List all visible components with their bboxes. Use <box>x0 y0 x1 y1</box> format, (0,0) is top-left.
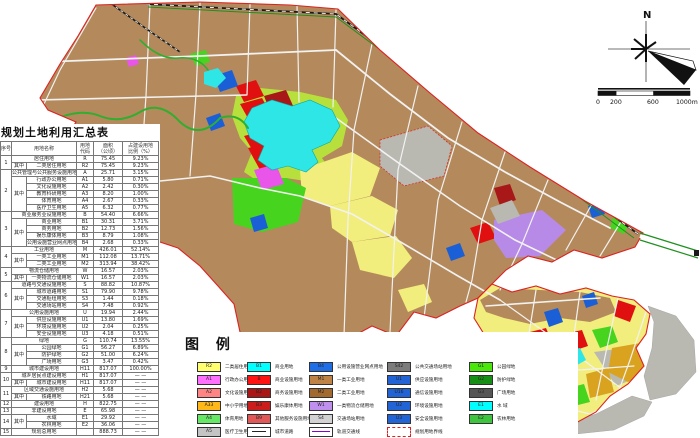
legend-swatch-e2: E2 <box>469 414 493 424</box>
table-cell: 5.68 <box>94 387 123 394</box>
table-cell: G3 <box>77 359 94 366</box>
table-cell: 6.24% <box>123 352 159 359</box>
table-cell: 农林用地 <box>27 422 77 429</box>
legend-swatch-s4: S4 <box>309 414 333 424</box>
table-row: 13非建设用地E65.98— — <box>1 408 159 415</box>
legend-item: U2环境设施用地 <box>387 399 452 412</box>
table-cell: 75.45 <box>94 156 123 163</box>
table-cell: 其中 <box>12 394 27 401</box>
table-cell: 0.30% <box>123 184 159 191</box>
legend-swatch-u3: U3 <box>387 414 411 424</box>
table-cell: G1 <box>77 345 94 352</box>
table-cell: 4 <box>1 247 12 268</box>
legend-swatch-a33: A33 <box>197 401 221 411</box>
table-cell: 铁路用地 <box>27 394 77 401</box>
table-header: 序号用地名称用地 代码面积 （公顷）占建设用地 比例（%） <box>1 142 159 156</box>
legend-swatch-a5: A5 <box>197 427 221 437</box>
table-cell: 13.55% <box>123 338 159 345</box>
table-cell: 10 <box>1 373 12 387</box>
table-cell: U1 <box>77 317 94 324</box>
legend-item: W1一类物流仓储用地 <box>309 399 383 412</box>
table-cell: 绿地 <box>12 338 77 345</box>
table-cell: 6 <box>1 282 12 310</box>
table-cell: U2 <box>77 324 94 331</box>
table-cell: 商务用地 <box>27 226 77 233</box>
table-cell: — — <box>123 394 159 401</box>
table-cell: 水域 <box>27 415 77 422</box>
legend-swatch-m1: M1 <box>309 375 333 385</box>
table-cell: 公园绿地 <box>27 345 77 352</box>
table-cell: 一类工业用地 <box>27 254 77 261</box>
legend-swatch-a2: A2 <box>197 388 221 398</box>
table-cell: 38.42% <box>123 261 159 268</box>
table-cell: 3.15% <box>123 170 159 177</box>
table-cell: 安全设施用地 <box>27 331 77 338</box>
table-cell: A2 <box>77 184 94 191</box>
legend-label: 公共交通场站用地 <box>415 364 452 370</box>
table-cell: 1.56% <box>123 226 159 233</box>
legend-item: A1行政办公用地 <box>197 373 253 386</box>
legend-column: G1公园绿地G2防护绿地G3广场用地E1水 域E2农林用地 <box>469 360 515 425</box>
table-cell: H21 <box>77 394 94 401</box>
legend-item: A5医疗卫生用地 <box>197 425 253 438</box>
legend-item: A2文化设施用地 <box>197 386 253 399</box>
table-cell: E1 <box>77 415 94 422</box>
table-cell: 30.31 <box>94 219 123 226</box>
legend-swatch-g3: G3 <box>469 388 493 398</box>
table-cell: 1.08% <box>123 233 159 240</box>
table-cell: 其中 <box>12 317 27 338</box>
table-cell: — — <box>123 422 159 429</box>
table-cell: 56.27 <box>94 345 123 352</box>
table-cell: 商业用地 <box>27 219 77 226</box>
table-row: 其中铁路用地H215.68— — <box>1 394 159 401</box>
table-cell: 商业服务业设施用地 <box>12 212 77 219</box>
table-cell: 3.47 <box>94 359 123 366</box>
table-cell: 9.78% <box>123 289 159 296</box>
table-cell: 城市建设用地 <box>27 380 77 387</box>
table-row: 15规划总用地888.73— — <box>1 429 159 436</box>
table-cell: 15 <box>1 429 12 436</box>
land-use-summary-table: 序号用地名称用地 代码面积 （公顷）占建设用地 比例（%） 1居住用地R75.4… <box>0 141 159 436</box>
table-cell: 居住用地 <box>12 156 77 163</box>
legend-label: 一类工业用地 <box>337 377 365 383</box>
table-cell: 区域交通设施用地 <box>12 387 77 394</box>
table-cell: 888.73 <box>94 429 123 436</box>
table-cell: M <box>77 247 94 254</box>
scale-label-1000: 1000m <box>676 99 698 106</box>
table-cell: 36.06 <box>94 422 123 429</box>
table-cell: 8 <box>1 338 12 366</box>
table-cell: M2 <box>77 261 94 268</box>
table-cell: W1 <box>77 275 94 282</box>
table-cell: 8.20 <box>94 191 123 198</box>
table-cell: 12.73 <box>94 226 123 233</box>
north-label: N <box>643 10 651 21</box>
legend-label: 体育用地 <box>225 416 243 422</box>
table-row: 7公用设施用地U19.942.44% <box>1 310 159 317</box>
table-cell: 2.03% <box>123 268 159 275</box>
table-cell: 25.71 <box>94 170 123 177</box>
table-cell: E2 <box>77 422 94 429</box>
legend-symbol-rail <box>309 427 333 437</box>
table-cell: 防护绿地 <box>27 352 77 359</box>
table-cell: 其中 <box>12 380 27 387</box>
table-cell: H11 <box>77 366 94 373</box>
legend-label: 二类工业用地 <box>337 390 365 396</box>
table-cell: 112.08 <box>94 254 123 261</box>
table-cell: 公用设施营业网点用地 <box>27 240 77 247</box>
legend-item: 轨道交通线 <box>309 425 383 438</box>
table-cell: 二类居住用地 <box>27 163 77 170</box>
table-row: 其中公园绿地G156.276.89% <box>1 345 159 352</box>
table-row: 3商业服务业设施用地B54.406.66% <box>1 212 159 219</box>
table-cell: 6.32 <box>94 205 123 212</box>
table-cell: 822.75 <box>94 401 123 408</box>
legend-column: S42公共交通场站用地U1供应设施用地U16通信设施用地U2环境设施用地U3安全… <box>387 360 452 438</box>
table-row: 其中供应设施用地U113.801.69% <box>1 317 159 324</box>
table-cell: H <box>77 401 94 408</box>
table-cell: 4.18 <box>94 331 123 338</box>
table-cell: R2 <box>77 163 94 170</box>
table-cell: 0.42% <box>123 359 159 366</box>
table-cell: 城乡居民点建设用地 <box>12 373 77 380</box>
page-title: 规划土地利用汇总表 <box>1 124 160 140</box>
table-cell: A5 <box>77 205 94 212</box>
legend-item: M2二类工业用地 <box>309 386 383 399</box>
table-cell: 7.48 <box>94 303 123 310</box>
table-cell: 0.77% <box>123 205 159 212</box>
legend-swatch-u1: U1 <box>387 375 411 385</box>
legend-label: 公园绿地 <box>497 364 515 370</box>
map-east-highway <box>640 233 699 258</box>
legend-label: 防护绿地 <box>497 377 515 383</box>
legend-label: 交通场站用地 <box>337 416 365 422</box>
table-cell: 75.45 <box>94 163 123 170</box>
legend-item: B1商业用地 <box>247 360 312 373</box>
legend-item: 城市道路 <box>247 425 312 438</box>
table-cell: 行政办公用地 <box>27 177 77 184</box>
table-header-cell: 面积 （公顷） <box>94 142 123 156</box>
table-row: 10城乡居民点建设用地H1817.07— — <box>1 373 159 380</box>
legend-swatch-e1: E1 <box>469 401 493 411</box>
table-cell: B1 <box>77 219 94 226</box>
table-cell: B4 <box>77 240 94 247</box>
legend-item: B4公用设施营业网点用地 <box>309 360 383 373</box>
scale-label-0: 0 <box>596 99 600 106</box>
legend-label: 商务设施用地 <box>275 390 303 396</box>
legend-label: 公用设施营业网点用地 <box>337 364 383 370</box>
table-row: 其中城市建设用地H11817.07— — <box>1 380 159 387</box>
table-row: 其中城市道路用地S179.909.78% <box>1 289 159 296</box>
scale-bar: 0 200 600 1000m <box>596 86 700 108</box>
table-cell: 0.18% <box>123 296 159 303</box>
table-cell: 2.04 <box>94 324 123 331</box>
legend-item: U1供应设施用地 <box>387 373 452 386</box>
legend-swatch-a4: A4 <box>197 414 221 424</box>
table-cell: A4 <box>77 198 94 205</box>
legend-swatch-b3: B3 <box>247 401 271 411</box>
legend-swatch-a1: A1 <box>197 375 221 385</box>
table-cell: G2 <box>77 352 94 359</box>
legend-column: B1商业用地B商业设施用地B2商务设施用地B3娱乐康体用地B9其他服务设施用地城… <box>247 360 312 438</box>
legend-label: 娱乐康体用地 <box>275 403 303 409</box>
table-cell: 2.44% <box>123 310 159 317</box>
legend-item: S4交通场站用地 <box>309 412 383 425</box>
table-cell: 0.25% <box>123 324 159 331</box>
table-cell: 建设用地 <box>12 401 77 408</box>
table-cell: 物流仓储用地 <box>12 268 77 275</box>
legend-item: E2农林用地 <box>469 412 515 425</box>
legend-swatch-m2: M2 <box>309 388 333 398</box>
table-cell: 其中 <box>12 275 27 282</box>
table-cell: 52.14% <box>123 247 159 254</box>
table-row: 12建设用地H822.75— — <box>1 401 159 408</box>
table-cell: 6.66% <box>123 212 159 219</box>
legend-item: G2防护绿地 <box>469 373 515 386</box>
table-cell: B3 <box>77 233 94 240</box>
table-cell: — — <box>123 415 159 422</box>
table-cell: 城市建设用地 <box>12 366 77 373</box>
table-cell: — — <box>123 408 159 415</box>
table-row: 2公共管理与公共服务设施用地A25.713.15% <box>1 170 159 177</box>
table-cell: 0.92% <box>123 303 159 310</box>
table-cell: 交通枢纽用地 <box>27 296 77 303</box>
legend-item: M1一类工业用地 <box>309 373 383 386</box>
table-cell: A3 <box>77 191 94 198</box>
legend-item: S42公共交通场站用地 <box>387 360 452 373</box>
table-header-cell: 序号 <box>1 142 12 156</box>
legend-label: 农林用地 <box>497 416 515 422</box>
table-cell: 19.94 <box>94 310 123 317</box>
table-cell: 1 <box>1 156 12 170</box>
legend-swatch-b1: B1 <box>247 362 271 372</box>
table-cell: 供应设施用地 <box>27 317 77 324</box>
table-body: 1居住用地R75.459.23%其中二类居住用地R275.459.23%2公共管… <box>1 156 159 436</box>
summary-table-panel: 规划土地利用汇总表 序号用地名称用地 代码面积 （公顷）占建设用地 比例（%） … <box>0 124 160 436</box>
table-cell: — — <box>123 429 159 436</box>
table-cell: 2 <box>1 170 12 212</box>
legend-item: G1公园绿地 <box>469 360 515 373</box>
legend-column: R2二类居住用地A1行政办公用地A2文化设施用地A33中小学用地A4体育用地A5… <box>197 360 253 438</box>
legend-label: 安全设施用地 <box>415 416 443 422</box>
table-row: 4工业用地M426.0152.14% <box>1 247 159 254</box>
table-cell: 规划总用地 <box>12 429 77 436</box>
table-cell: U3 <box>77 331 94 338</box>
table-cell: 54.40 <box>94 212 123 219</box>
table-cell: 非建设用地 <box>12 408 77 415</box>
legend-item: B9其他服务设施用地 <box>247 412 312 425</box>
legend-label: 水 域 <box>497 403 508 409</box>
table-cell: A1 <box>77 177 94 184</box>
table-cell: 公共管理与公共服务设施用地 <box>12 170 77 177</box>
legend-symbol-road <box>247 427 271 437</box>
legend-label: 广场用地 <box>497 390 515 396</box>
table-cell: 3.71% <box>123 219 159 226</box>
table-row: 8绿地G110.7413.55% <box>1 338 159 345</box>
table-cell: 娱乐康体用地 <box>27 233 77 240</box>
table-row: 1居住用地R75.459.23% <box>1 156 159 163</box>
table-cell: 13.80 <box>94 317 123 324</box>
table-cell: 9.23% <box>123 163 159 170</box>
table-cell: 环境设施用地 <box>27 324 77 331</box>
table-cell: 426.01 <box>94 247 123 254</box>
table-cell: S3 <box>77 296 94 303</box>
table-cell: S <box>77 282 94 289</box>
table-cell: S4 <box>77 303 94 310</box>
legend-item: U16通信设施用地 <box>387 386 452 399</box>
table-cell: 817.07 <box>94 366 123 373</box>
table-cell: 12 <box>1 401 12 408</box>
table-cell: 65.98 <box>94 408 123 415</box>
table-cell: 其中 <box>12 345 27 366</box>
table-cell: 1.44 <box>94 296 123 303</box>
table-row: 14其中水域E129.92— — <box>1 415 159 422</box>
legend-label: 中小学用地 <box>225 403 248 409</box>
legend-item: G3广场用地 <box>469 386 515 399</box>
legend-item: 规划用地界线 <box>387 425 452 438</box>
table-cell: W <box>77 268 94 275</box>
table-cell: 2.67 <box>94 198 123 205</box>
table-cell: 2.03% <box>123 275 159 282</box>
table-cell: 5.80 <box>94 177 123 184</box>
table-cell: 其中 <box>12 163 27 170</box>
legend-label: 环境设施用地 <box>415 403 443 409</box>
scale-label-600: 600 <box>647 99 659 106</box>
table-cell: 16.57 <box>94 275 123 282</box>
legend-item: A33中小学用地 <box>197 399 253 412</box>
table-row: 11区域交通设施用地H25.68— — <box>1 387 159 394</box>
table-cell: 0.33% <box>123 198 159 205</box>
legend-swatch-r2: R2 <box>197 362 221 372</box>
table-cell: 11 <box>1 387 12 401</box>
legend-item: U3安全设施用地 <box>387 412 452 425</box>
table-cell: H11 <box>77 380 94 387</box>
legend-item: R2二类居住用地 <box>197 360 253 373</box>
legend-item: A4体育用地 <box>197 412 253 425</box>
table-cell: G <box>77 338 94 345</box>
table-cell: 体育用地 <box>27 198 77 205</box>
table-cell: 817.07 <box>94 380 123 387</box>
table-cell: 7 <box>1 310 12 338</box>
table-cell: 313.94 <box>94 261 123 268</box>
table-cell: 2.42 <box>94 184 123 191</box>
legend-swatch-b: B <box>247 375 271 385</box>
table-cell: 5 <box>1 268 12 282</box>
scale-label-200: 200 <box>610 99 622 106</box>
north-arrow: N <box>600 4 700 86</box>
legend-swatch-g1: G1 <box>469 362 493 372</box>
table-cell: R <box>77 156 94 163</box>
table-cell: 医疗卫生用地 <box>27 205 77 212</box>
table-row: 其中二类居住用地R275.459.23% <box>1 163 159 170</box>
table-cell: 文化设施用地 <box>27 184 77 191</box>
legend-title: 图 例 <box>185 334 578 354</box>
legend-swatch-b9: B9 <box>247 414 271 424</box>
table-row: 其中一类工业用地M1112.0813.71% <box>1 254 159 261</box>
table-row: 其中一类物流仓储用地W116.572.03% <box>1 275 159 282</box>
table-cell: 0.33% <box>123 240 159 247</box>
table-cell: 10.87% <box>123 282 159 289</box>
table-cell: 0.71% <box>123 177 159 184</box>
table-cell: 教育科研用地 <box>27 191 77 198</box>
table-cell: 110.74 <box>94 338 123 345</box>
table-cell: 817.07 <box>94 373 123 380</box>
table-row: 其中行政办公用地A15.800.71% <box>1 177 159 184</box>
legend-swatch-u2: U2 <box>387 401 411 411</box>
table-cell: 其中 <box>12 415 27 429</box>
table-cell: 9 <box>1 366 12 373</box>
table-cell: 13 <box>1 408 12 415</box>
table-header-cell: 用地 代码 <box>77 142 94 156</box>
legend-item: B2商务设施用地 <box>247 386 312 399</box>
table-cell: 100.00% <box>123 366 159 373</box>
table-cell: 8.79 <box>94 233 123 240</box>
table-cell: 二类工业用地 <box>27 261 77 268</box>
table-cell: 其中 <box>12 254 27 268</box>
table-cell: 9.23% <box>123 156 159 163</box>
table-cell: 公用设施用地 <box>12 310 77 317</box>
table-cell: 道路与交通设施用地 <box>12 282 77 289</box>
table-cell: 88.82 <box>94 282 123 289</box>
legend-swatch-b4: B4 <box>309 362 333 372</box>
legend-label: 其他服务设施用地 <box>275 416 312 422</box>
table-cell: 3 <box>1 212 12 247</box>
legend-swatch-u16: U16 <box>387 388 411 398</box>
legend-label: 商业用地 <box>275 364 293 370</box>
table-header-cell: 占建设用地 比例（%） <box>123 142 159 156</box>
table-cell: — — <box>123 401 159 408</box>
table-cell: U <box>77 310 94 317</box>
table-cell: 一类物流仓储用地 <box>27 275 77 282</box>
table-cell: — — <box>123 387 159 394</box>
table-cell: — — <box>123 373 159 380</box>
table-cell: S1 <box>77 289 94 296</box>
table-cell: 交通场站用地 <box>27 303 77 310</box>
table-cell: 2.68 <box>94 240 123 247</box>
table-cell: M1 <box>77 254 94 261</box>
legend-item: B商业设施用地 <box>247 373 312 386</box>
table-cell: 其中 <box>12 177 27 212</box>
table-cell: 79.90 <box>94 289 123 296</box>
table-row: 9城市建设用地H11817.07100.00% <box>1 366 159 373</box>
legend-panel: 图 例 R2二类居住用地A1行政办公用地A2文化设施用地A33中小学用地A4体育… <box>183 332 578 434</box>
table-cell: 14 <box>1 415 12 429</box>
legend-item: E1水 域 <box>469 399 515 412</box>
table-cell: 51.00 <box>94 352 123 359</box>
table-cell: 13.71% <box>123 254 159 261</box>
table-row: 5物流仓储用地W16.572.03% <box>1 268 159 275</box>
legend-swatch-s42: S42 <box>387 362 411 372</box>
table-cell: B2 <box>77 226 94 233</box>
legend-label: 一类物流仓储用地 <box>337 403 374 409</box>
table-cell <box>77 429 94 436</box>
table-cell: 其中 <box>12 219 27 247</box>
table-cell: — — <box>123 380 159 387</box>
legend-swatch-g2: G2 <box>469 375 493 385</box>
table-cell: 工业用地 <box>12 247 77 254</box>
table-row: 其中商业用地B130.313.71% <box>1 219 159 226</box>
table-cell: 广场用地 <box>27 359 77 366</box>
table-header-cell: 用地名称 <box>12 142 77 156</box>
table-cell: 29.92 <box>94 415 123 422</box>
table-cell: 城市道路用地 <box>27 289 77 296</box>
legend-column: B4公用设施营业网点用地M1一类工业用地M2二类工业用地W1一类物流仓储用地S4… <box>309 360 383 438</box>
legend-swatch-b2: B2 <box>247 388 271 398</box>
table-row: 6道路与交通设施用地S88.8210.87% <box>1 282 159 289</box>
table-cell: A <box>77 170 94 177</box>
table-cell: H1 <box>77 373 94 380</box>
